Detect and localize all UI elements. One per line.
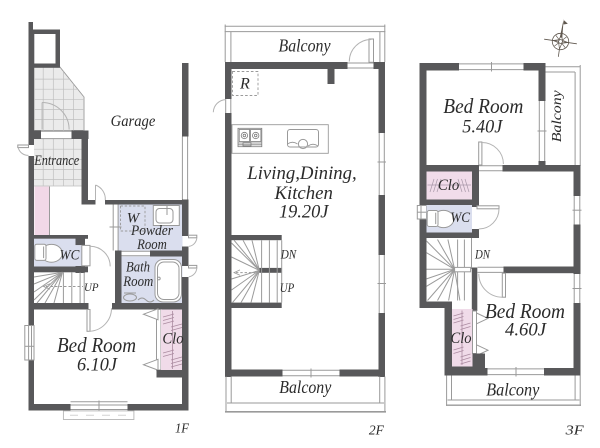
svg-text:DN: DN bbox=[474, 247, 491, 262]
svg-text:Bed Room: Bed Room bbox=[443, 94, 523, 118]
svg-text:WC: WC bbox=[60, 248, 80, 264]
svg-text:Room: Room bbox=[122, 274, 153, 290]
svg-text:UP: UP bbox=[280, 280, 295, 295]
svg-text:Room: Room bbox=[136, 237, 167, 253]
svg-text:6.10J: 6.10J bbox=[77, 355, 118, 376]
svg-text:WC: WC bbox=[450, 210, 470, 226]
svg-text:3F: 3F bbox=[565, 424, 585, 439]
svg-text:DN: DN bbox=[280, 247, 297, 262]
svg-text:Clo: Clo bbox=[438, 177, 459, 194]
svg-text:UP: UP bbox=[84, 280, 99, 294]
svg-text:Balcony: Balcony bbox=[486, 380, 539, 400]
svg-text:4.60J: 4.60J bbox=[505, 320, 548, 341]
svg-text:2F: 2F bbox=[369, 424, 384, 439]
svg-text:Bed Room: Bed Room bbox=[57, 333, 136, 357]
svg-text:Balcony: Balcony bbox=[279, 36, 331, 56]
svg-text:Balcony: Balcony bbox=[550, 89, 565, 142]
svg-text:R: R bbox=[239, 76, 250, 93]
svg-text:Balcony: Balcony bbox=[279, 377, 331, 397]
svg-text:Garage: Garage bbox=[111, 113, 156, 130]
svg-text:1F: 1F bbox=[175, 422, 189, 437]
svg-text:19.20J: 19.20J bbox=[279, 202, 330, 223]
svg-text:Living,Dining,: Living,Dining, bbox=[246, 163, 356, 184]
svg-text:Clo: Clo bbox=[451, 330, 472, 347]
svg-text:Clo: Clo bbox=[162, 331, 183, 348]
svg-text:Entrance: Entrance bbox=[33, 153, 79, 169]
svg-text:5.40J: 5.40J bbox=[462, 117, 503, 138]
